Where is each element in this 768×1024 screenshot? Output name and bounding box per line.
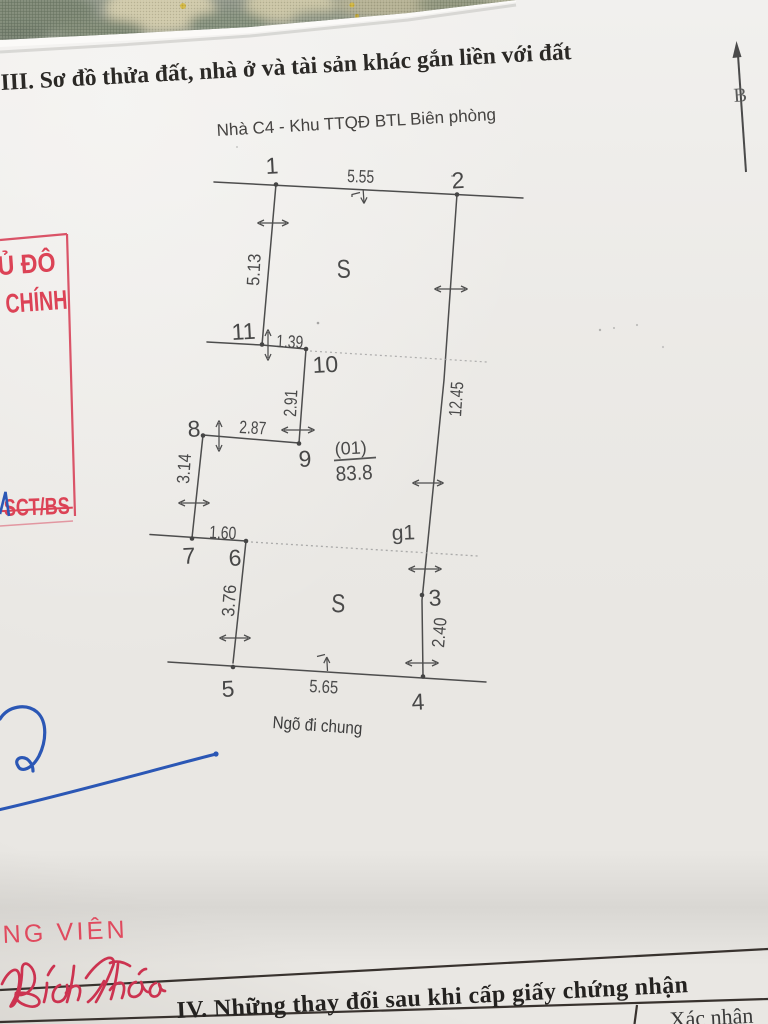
svg-text:NG VIÊN: NG VIÊN	[2, 915, 128, 949]
svg-text:83.8: 83.8	[335, 461, 373, 486]
svg-text:10: 10	[312, 351, 339, 378]
svg-text:3.14: 3.14	[173, 453, 195, 484]
svg-text:g1: g1	[391, 521, 415, 545]
svg-text:5.13: 5.13	[243, 253, 265, 286]
svg-text:8: 8	[187, 415, 201, 442]
svg-text:4: 4	[411, 688, 425, 715]
svg-text:S: S	[331, 588, 346, 618]
svg-text:2.91: 2.91	[280, 389, 301, 417]
svg-text:6: 6	[228, 544, 242, 571]
svg-text:2.40: 2.40	[428, 617, 451, 649]
svg-text:2: 2	[451, 167, 465, 194]
svg-text:5: 5	[221, 675, 235, 702]
svg-text:1.60: 1.60	[209, 522, 237, 543]
svg-text:9: 9	[298, 445, 312, 472]
svg-text:3.76: 3.76	[218, 584, 240, 617]
svg-text:7: 7	[182, 542, 196, 569]
svg-text:5.55: 5.55	[347, 166, 375, 187]
svg-text:CHÍNH: CHÍNH	[4, 284, 68, 319]
svg-text:3: 3	[428, 584, 442, 611]
svg-text:11: 11	[231, 318, 256, 345]
svg-text:B: B	[733, 84, 748, 107]
svg-text:(01): (01)	[334, 437, 367, 459]
svg-text:S: S	[336, 254, 351, 284]
svg-text:Ủ ĐÔ: Ủ ĐÔ	[0, 245, 56, 281]
svg-text:1: 1	[265, 152, 279, 179]
svg-text:2.87: 2.87	[239, 417, 267, 438]
svg-text:5.65: 5.65	[309, 676, 339, 697]
svg-text:1.39: 1.39	[276, 331, 304, 352]
svg-text:12.45: 12.45	[445, 381, 467, 417]
svg-text:Xác nhận: Xác nhận	[669, 1003, 754, 1024]
